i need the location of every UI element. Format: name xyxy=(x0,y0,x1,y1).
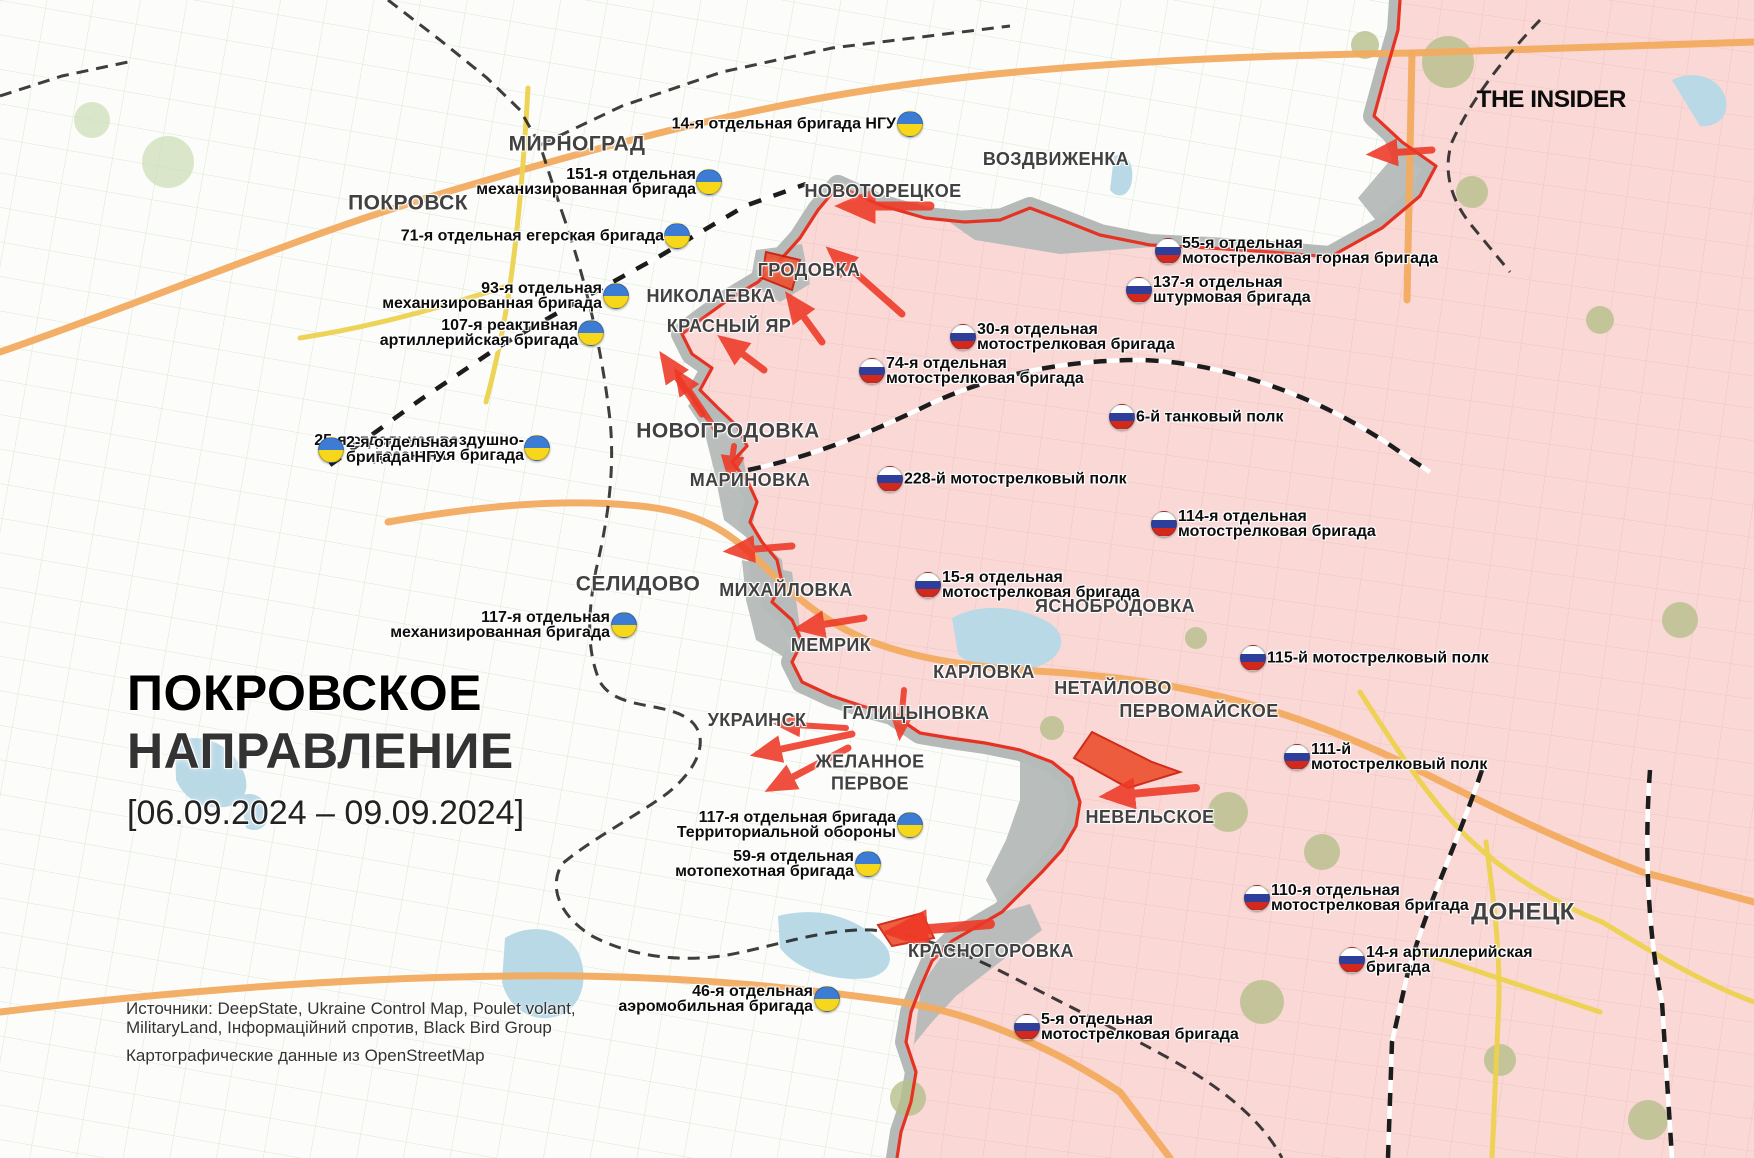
unit-label-line: 111-й xyxy=(1311,742,1487,757)
unit-label-line: 59-я отдельная xyxy=(675,849,854,864)
unit-label-line: 93-я отдельная xyxy=(382,281,602,296)
unit-label: 74-я отдельнаямотострелковая бригада xyxy=(886,356,1084,386)
the-insider-logo: THE INSIDER xyxy=(1477,86,1626,114)
unit-label-line: 74-я отдельная xyxy=(886,356,1084,371)
map-title-line2: НАПРАВЛЕНИЕ xyxy=(127,722,524,780)
unit-label-line: 14-я артиллерийская xyxy=(1366,945,1533,960)
unit-label: 115-й мотострелковый полк xyxy=(1267,651,1489,666)
unit-label-line: мотострелковая бригада xyxy=(1178,524,1376,539)
unit-label: 15-я отдельнаямотострелковая бригада xyxy=(942,570,1140,600)
city-label: СЕЛИДОВО xyxy=(576,571,700,596)
russia-flag-icon xyxy=(1244,885,1270,911)
map-title-line1: ПОКРОВСКОЕ xyxy=(127,664,524,722)
city-label: МИХАЙЛОВКА xyxy=(719,580,853,602)
city-label: КАРЛОВКА xyxy=(933,662,1035,684)
russia-flag-icon xyxy=(1284,744,1310,770)
russia-flag-icon xyxy=(859,358,885,384)
ukraine-flag-icon xyxy=(603,283,629,309)
russia-flag-icon xyxy=(1155,238,1181,264)
russia-flag-icon xyxy=(877,466,903,492)
unit-label-line: 117-я отдельная xyxy=(390,610,610,625)
unit-label-line: механизированная бригада xyxy=(476,182,696,197)
city-label: НОВОГРОДОВКА xyxy=(636,418,819,443)
unit-label-line: мотострелковая бригада xyxy=(1041,1027,1239,1042)
unit-label-line: бригада xyxy=(1366,960,1533,975)
sources-line2: MilitaryLand, Інформаційний спротив, Bla… xyxy=(126,1018,576,1037)
unit-label: 110-я отдельнаямотострелковая бригада xyxy=(1271,883,1469,913)
map-date-range: [06.09.2024 – 09.09.2024] xyxy=(127,794,524,833)
unit-label-line: 115-й мотострелковый полк xyxy=(1267,651,1489,666)
city-label: МИРНОГРАД xyxy=(509,131,646,156)
unit-label-line: 71-я отдельная егерская бригада xyxy=(401,229,664,244)
unit-label: 30-я отдельнаямотострелковая бригада xyxy=(977,322,1175,352)
ukraine-flag-icon xyxy=(814,986,840,1012)
ukraine-flag-icon xyxy=(664,223,690,249)
city-label: МЕМРИК xyxy=(791,635,871,657)
city-label: ГРОДОВКА xyxy=(758,260,861,282)
unit-label-line: мотострелковая горная бригада xyxy=(1182,251,1438,266)
unit-label-line: 46-я отдельная xyxy=(618,984,813,999)
ukraine-flag-icon xyxy=(696,169,722,195)
unit-label: 137-я отдельнаяштурмовая бригада xyxy=(1153,275,1311,305)
unit-label: 55-я отдельнаямотострелковая горная бриг… xyxy=(1182,236,1438,266)
unit-label: 5-я отдельнаямотострелковая бригада xyxy=(1041,1012,1239,1042)
unit-label: 93-я отдельнаямеханизированная бригада xyxy=(382,281,602,311)
unit-label-line: штурмовая бригада xyxy=(1153,290,1311,305)
unit-label-line: 2-я отдельная xyxy=(346,435,458,450)
russia-flag-icon xyxy=(1126,277,1152,303)
unit-label: 117-я отдельнаямеханизированная бригада xyxy=(390,610,610,640)
ukraine-flag-icon xyxy=(897,111,923,137)
ukraine-flag-icon xyxy=(318,437,344,463)
unit-label-line: 110-я отдельная xyxy=(1271,883,1469,898)
unit-label: 71-я отдельная егерская бригада xyxy=(401,229,664,244)
ukraine-flag-icon xyxy=(578,320,604,346)
city-label: УКРАИНСК xyxy=(708,710,807,732)
city-label: МАРИНОВКА xyxy=(690,470,811,492)
unit-label-line: мотострелковая бригада xyxy=(942,585,1140,600)
city-label: ПЕРВОМАЙСКОЕ xyxy=(1119,701,1278,723)
city-label: ПОКРОВСК xyxy=(348,190,468,215)
label-overlay: МИРНОГРАДПОКРОВСКВОЗДВИЖЕНКАНОВОТОРЕЦКОЕ… xyxy=(0,0,1754,1158)
unit-label-line: мотострелковый полк xyxy=(1311,757,1487,772)
unit-label-line: 151-я отдельная xyxy=(476,167,696,182)
unit-label: 6-й танковый полк xyxy=(1136,410,1283,425)
ukraine-flag-icon xyxy=(611,612,637,638)
unit-label-line: 107-я реактивная xyxy=(380,318,578,333)
city-label: ГАЛИЦЫНОВКА xyxy=(842,703,989,725)
unit-label-line: мотопехотная бригада xyxy=(675,864,854,879)
unit-label-line: 6-й танковый полк xyxy=(1136,410,1283,425)
unit-label: 59-я отдельнаямотопехотная бригада xyxy=(675,849,854,879)
unit-label-line: мотострелковая бригада xyxy=(1271,898,1469,913)
unit-label: 14-я артиллерийскаябригада xyxy=(1366,945,1533,975)
unit-label-line: механизированная бригада xyxy=(382,296,602,311)
unit-label-line: 30-я отдельная xyxy=(977,322,1175,337)
ukraine-flag-icon xyxy=(897,812,923,838)
russia-flag-icon xyxy=(950,324,976,350)
russia-flag-icon xyxy=(1240,645,1266,671)
unit-label-line: механизированная бригада xyxy=(390,625,610,640)
unit-label-line: 228-й мотострелковый полк xyxy=(904,472,1127,487)
unit-label-line: мотострелковая бригада xyxy=(886,371,1084,386)
sources-block: Источники: DeepState, Ukraine Control Ma… xyxy=(126,999,576,1065)
unit-label: 2-я отдельнаябригада НГУ xyxy=(346,435,458,465)
unit-label: 14-я отдельная бригада НГУ xyxy=(672,117,896,132)
city-label: НИКОЛАЕВКА xyxy=(646,286,775,308)
unit-label-line: 117-я отдельная бригада xyxy=(677,810,896,825)
unit-label-line: 14-я отдельная бригада НГУ xyxy=(672,117,896,132)
unit-label: 111-ймотострелковый полк xyxy=(1311,742,1487,772)
unit-label: 46-я отдельнаяаэромобильная бригада xyxy=(618,984,813,1014)
unit-label-line: Территориальной обороны xyxy=(677,825,896,840)
sources-line3: Картографические данные из OpenStreetMap xyxy=(126,1046,576,1065)
unit-label-line: 114-я отдельная xyxy=(1178,509,1376,524)
russia-flag-icon xyxy=(1339,947,1365,973)
ukraine-flag-icon xyxy=(524,435,550,461)
unit-label-line: 55-я отдельная xyxy=(1182,236,1438,251)
unit-label-line: аэромобильная бригада xyxy=(618,999,813,1014)
unit-label: 228-й мотострелковый полк xyxy=(904,472,1127,487)
unit-label: 114-я отдельнаямотострелковая бригада xyxy=(1178,509,1376,539)
city-label: ДОНЕЦК xyxy=(1471,899,1575,928)
sources-line1: Источники: DeepState, Ukraine Control Ma… xyxy=(126,999,576,1018)
title-block: ПОКРОВСКОЕ НАПРАВЛЕНИЕ [06.09.2024 – 09.… xyxy=(127,664,524,833)
city-label: НЕТАЙЛОВО xyxy=(1054,678,1172,700)
city-label: ЖЕЛАННОЕ ПЕРВОЕ xyxy=(815,751,924,794)
unit-label-line: 137-я отдельная xyxy=(1153,275,1311,290)
city-label: ВОЗДВИЖЕНКА xyxy=(983,149,1129,171)
unit-label: 151-я отдельнаямеханизированная бригада xyxy=(476,167,696,197)
unit-label: 107-я реактивнаяартиллерийская бригада xyxy=(380,318,578,348)
unit-label-line: бригада НГУ xyxy=(346,450,458,465)
city-label: НЕВЕЛЬСКОЕ xyxy=(1085,807,1214,829)
city-label: НОВОТОРЕЦКОЕ xyxy=(804,181,961,203)
city-label: КРАСНЫЙ ЯР xyxy=(667,316,791,338)
city-label: КРАСНОГОРОВКА xyxy=(908,941,1074,963)
russia-flag-icon xyxy=(1151,511,1177,537)
unit-label-line: 15-я отдельная xyxy=(942,570,1140,585)
russia-flag-icon xyxy=(1109,404,1135,430)
russia-flag-icon xyxy=(915,572,941,598)
map-canvas: МИРНОГРАДПОКРОВСКВОЗДВИЖЕНКАНОВОТОРЕЦКОЕ… xyxy=(0,0,1754,1158)
unit-label: 117-я отдельная бригадаТерриториальной о… xyxy=(677,810,896,840)
unit-label-line: 5-я отдельная xyxy=(1041,1012,1239,1027)
unit-label-line: мотострелковая бригада xyxy=(977,337,1175,352)
unit-label-line: артиллерийская бригада xyxy=(380,333,578,348)
russia-flag-icon xyxy=(1014,1014,1040,1040)
ukraine-flag-icon xyxy=(855,851,881,877)
